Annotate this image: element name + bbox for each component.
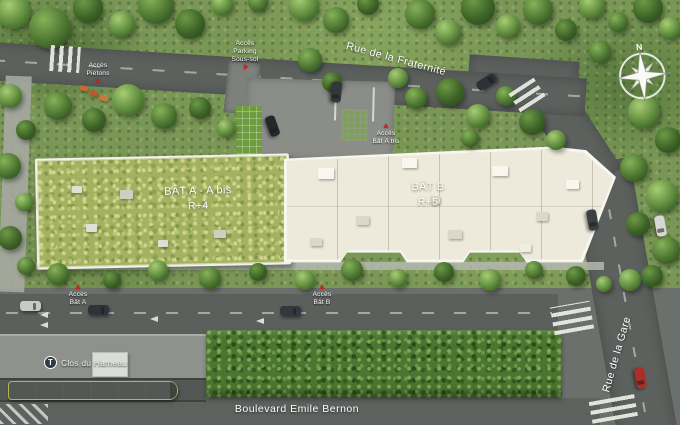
tree [341, 259, 363, 281]
tree [388, 68, 408, 88]
tree [608, 12, 628, 32]
tree [151, 103, 177, 129]
lane-arrow [40, 312, 48, 318]
tree [112, 84, 144, 116]
car [280, 306, 301, 316]
car-windshield [486, 76, 493, 84]
tree [389, 269, 407, 287]
building-level: R+5 [368, 195, 488, 210]
tree [525, 261, 543, 279]
marker-text: Accès [300, 291, 344, 299]
access-marker-bat-a: ▲ Accès Bât A [56, 283, 100, 307]
street-label-bernon: Boulevard Emile Bernon [217, 403, 377, 415]
site-plan-aerial-view: BÂT A - A bis R+4 BÂT B R+5 Accès Parkin… [0, 0, 680, 425]
tree [29, 7, 71, 49]
car [20, 301, 41, 311]
tree [646, 180, 678, 212]
roof-equipment [492, 166, 508, 176]
tree [546, 130, 566, 150]
tree [626, 212, 650, 236]
tree [436, 78, 464, 106]
tree [15, 193, 33, 211]
roof-equipment [536, 212, 548, 221]
pavement-hatch [0, 404, 48, 424]
marker-text: Accès [222, 40, 268, 48]
tree [620, 154, 648, 182]
building-name: BÂT B [368, 180, 488, 195]
car-windshield [589, 222, 597, 227]
central-hedge [206, 330, 562, 398]
red-arrow-icon: ▲ [362, 122, 410, 130]
marker-text: Bât B [300, 299, 344, 307]
tree [82, 108, 106, 132]
roof-equipment [448, 230, 462, 239]
roof-equipment [356, 216, 369, 225]
tree [405, 0, 435, 29]
green-link-roof [236, 106, 262, 160]
access-marker-parking: Accès Parking Sous-sol ▼ [222, 40, 268, 72]
marker-text: Accès [56, 291, 100, 299]
tree [17, 257, 35, 275]
tree [16, 120, 36, 140]
tree [555, 19, 577, 41]
roof-equipment [214, 230, 226, 238]
marker-text: Bât A [56, 299, 100, 307]
car-windshield [657, 228, 665, 233]
tram-icon: T [44, 356, 57, 369]
red-arrow-icon: ▲ [56, 283, 100, 291]
tree [655, 127, 680, 153]
tree [435, 19, 461, 45]
roof-equipment [520, 244, 531, 252]
tree [496, 14, 520, 38]
red-arrow-icon: ▲ [300, 283, 344, 291]
tree [619, 269, 641, 291]
marker-text: Accès [78, 62, 118, 70]
roof-equipment [402, 158, 417, 168]
compass-north-label: N [636, 42, 643, 53]
tree [109, 11, 135, 37]
tree [596, 276, 612, 292]
access-marker-bat-b: ▲ Accès Bât B [300, 283, 344, 307]
red-arrow-icon: ▼ [78, 78, 118, 86]
tree [479, 269, 501, 291]
tree [175, 9, 205, 39]
tree [461, 129, 479, 147]
car-windshield [101, 307, 105, 314]
tree [298, 48, 322, 72]
tree [44, 92, 72, 120]
car-windshield [637, 380, 645, 385]
tree [434, 262, 454, 282]
car-windshield [332, 94, 339, 98]
car-windshield [293, 308, 297, 315]
building-label-bat-a: BÂT A - A bis R+4 [118, 182, 279, 216]
crosswalk [49, 45, 81, 73]
tree [652, 236, 680, 264]
marker-text: Bât A bis [362, 138, 410, 146]
marker-text: Accès [362, 130, 410, 138]
tree [519, 109, 545, 135]
roof-equipment [318, 168, 334, 179]
tree [405, 87, 427, 109]
tram-vehicle [8, 381, 178, 400]
tree [249, 263, 267, 281]
tree [659, 17, 680, 39]
lane-arrow [256, 318, 264, 324]
roof-equipment [310, 238, 322, 246]
tree [199, 267, 221, 289]
lane-arrow [150, 316, 158, 322]
tree [566, 266, 586, 286]
tree [148, 260, 168, 280]
tree [323, 7, 349, 33]
access-marker-pietons: Accès Piétons ▼ [78, 62, 118, 86]
lane-arrow [40, 322, 48, 328]
building-label-bat-b: BÂT B R+5 [368, 180, 488, 210]
roof-equipment [86, 224, 97, 232]
tree [47, 263, 69, 285]
roof-equipment [566, 180, 579, 189]
tree [189, 97, 211, 119]
tram-stop-name: Clos du Hameau [61, 358, 127, 368]
roof-equipment [72, 186, 82, 193]
parking-stall-line [372, 87, 374, 121]
compass-rose: N [607, 39, 677, 107]
car [330, 81, 342, 103]
car-windshield [270, 127, 278, 133]
tram-stop-label: T Clos du Hameau [44, 356, 127, 369]
access-marker-bat-a-bis: ▲ Accès Bât A bis [362, 122, 410, 146]
roof-equipment [158, 240, 168, 247]
compass-star-icon: N [607, 39, 677, 107]
tree [103, 271, 121, 289]
tree [217, 119, 235, 137]
tree [641, 265, 663, 287]
car-windshield [33, 303, 37, 310]
tree [466, 104, 490, 128]
